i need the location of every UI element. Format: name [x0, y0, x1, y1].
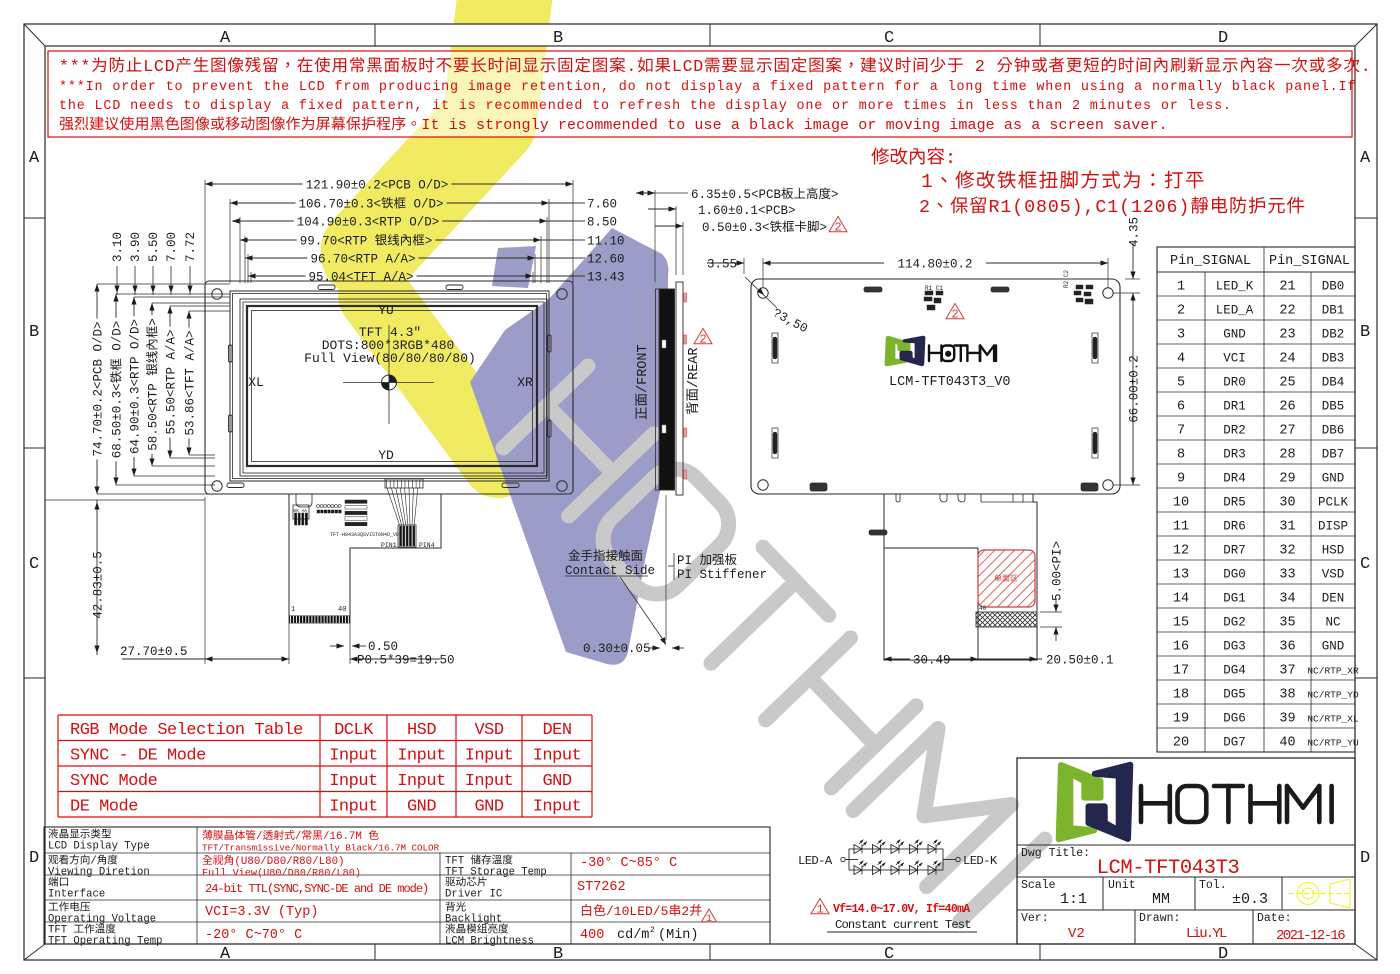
svg-text:3: 3 — [1177, 328, 1185, 343]
svg-text:7.72: 7.72 — [184, 232, 198, 262]
svg-text:21: 21 — [1279, 280, 1295, 295]
svg-text:3.10: 3.10 — [111, 232, 125, 262]
svg-text:Input: Input — [397, 772, 446, 791]
svg-text:HSD: HSD — [1322, 544, 1345, 558]
svg-text:38: 38 — [1279, 688, 1295, 703]
svg-text:P0.5*39=19.50: P0.5*39=19.50 — [357, 654, 455, 668]
svg-text:12.60: 12.60 — [587, 253, 625, 267]
svg-text:1:1: 1:1 — [1060, 891, 1087, 908]
svg-text:D: D — [1218, 945, 1228, 964]
svg-text:99.70<RTP: 99.70<RTP — [300, 235, 375, 249]
svg-text:C: C — [884, 29, 894, 48]
svg-text:LCM-TFT043T3_V0: LCM-TFT043T3_V0 — [889, 375, 1011, 390]
svg-text:40: 40 — [1279, 736, 1295, 751]
svg-text:40: 40 — [338, 606, 346, 614]
svg-text:11: 11 — [1173, 520, 1189, 535]
svg-text:D: D — [1218, 29, 1228, 48]
svg-text:C: C — [1360, 555, 1370, 574]
svg-text:29: 29 — [1279, 472, 1295, 487]
svg-text:Drawn:: Drawn: — [1139, 912, 1180, 925]
svg-text:Pin_SIGNAL: Pin_SIGNAL — [1269, 254, 1350, 269]
svg-text:A: A — [1360, 149, 1371, 168]
svg-text:XR: XR — [517, 375, 533, 390]
svg-text:31: 31 — [1279, 520, 1295, 535]
svg-text:DISP: DISP — [1318, 520, 1348, 534]
svg-text:It is strongly recommended to: It is strongly recommended to use a blac… — [421, 117, 1167, 134]
svg-text:74.70±0.2<PCB O/D>: 74.70±0.2<PCB O/D> — [92, 321, 106, 456]
svg-text:Input: Input — [329, 798, 378, 817]
svg-text:NC/RTP_XR: NC/RTP_XR — [1307, 666, 1359, 677]
svg-text:Input: Input — [329, 772, 378, 791]
svg-text:5.00<PI>: 5.00<PI> — [1051, 541, 1065, 601]
svg-text:40: 40 — [979, 605, 987, 612]
svg-text:NC/RTP_XL: NC/RTP_XL — [1307, 714, 1359, 725]
svg-text:106.70±0.3<: 106.70±0.3< — [299, 198, 382, 212]
svg-text:24-bit TTL(SYNC,SYNC-DE and DE: 24-bit TTL(SYNC,SYNC-DE and DE mode) — [205, 882, 428, 896]
svg-text:.: . — [1361, 57, 1372, 76]
svg-text:20: 20 — [1173, 736, 1189, 751]
svg-text:1: 1 — [921, 171, 934, 193]
svg-text:3.55: 3.55 — [707, 258, 737, 272]
svg-text:8: 8 — [1177, 448, 1185, 463]
svg-text:>: > — [425, 235, 433, 249]
svg-text:/16.7M: /16.7M — [323, 831, 368, 843]
svg-text:96.70<RTP A/A>: 96.70<RTP A/A> — [311, 253, 416, 267]
svg-text:DG6: DG6 — [1223, 712, 1246, 726]
svg-text:DG0: DG0 — [1223, 568, 1246, 582]
svg-text:C: C — [884, 945, 894, 964]
svg-text:DG4: DG4 — [1223, 664, 1246, 678]
svg-text:2: 2 — [650, 926, 655, 935]
svg-text:DEN: DEN — [542, 721, 571, 740]
svg-text:LED_A: LED_A — [1216, 304, 1254, 318]
svg-text:121.90±0.2<PCB O/D>: 121.90±0.2<PCB O/D> — [306, 179, 449, 193]
svg-text:24: 24 — [1279, 352, 1295, 367]
svg-text:DB7: DB7 — [1322, 448, 1345, 462]
svg-text:14: 14 — [1173, 592, 1189, 607]
svg-text:Input: Input — [465, 772, 514, 791]
svg-text:SYNC - DE Mode: SYNC - DE Mode — [70, 747, 206, 766]
svg-text:>: > — [831, 188, 839, 202]
svg-text:Date:: Date: — [1257, 912, 1292, 925]
svg-text:/FRONT: /FRONT — [636, 344, 651, 393]
svg-text:XL: XL — [248, 375, 264, 390]
svg-text:1: 1 — [706, 914, 712, 925]
svg-text:1: 1 — [291, 606, 295, 614]
svg-text:13: 13 — [1173, 568, 1189, 583]
svg-text:VSD: VSD — [474, 721, 503, 740]
svg-text:B: B — [29, 323, 39, 342]
svg-text:4: 4 — [1177, 352, 1185, 367]
svg-text:/: / — [256, 831, 262, 843]
svg-text:35: 35 — [1279, 616, 1295, 631]
svg-text:7.00: 7.00 — [165, 232, 179, 262]
svg-text:***: *** — [59, 57, 91, 76]
svg-text:27.70±0.5: 27.70±0.5 — [120, 645, 188, 659]
svg-text:DB4: DB4 — [1322, 376, 1345, 390]
svg-text:O/D>: O/D> — [111, 321, 125, 359]
svg-text:95.04<TFT A/A>: 95.04<TFT A/A> — [309, 271, 414, 285]
svg-text:DR5: DR5 — [1223, 496, 1246, 510]
svg-text:23: 23 — [1279, 328, 1295, 343]
svg-text:GND: GND — [1223, 328, 1246, 342]
svg-text:DB1: DB1 — [1322, 304, 1345, 318]
svg-text:DR6: DR6 — [1223, 520, 1246, 534]
svg-text:Constant current Test: Constant current Test — [835, 918, 971, 932]
svg-text:LED-K: LED-K — [963, 854, 998, 868]
svg-text:NC/RTP_YU: NC/RTP_YU — [1307, 738, 1359, 749]
svg-text:2: 2 — [1177, 304, 1185, 319]
svg-text:Ver:: Ver: — [1021, 912, 1049, 925]
svg-text:10: 10 — [1173, 496, 1189, 511]
svg-text:VCI: VCI — [1223, 352, 1246, 366]
svg-text:5.50: 5.50 — [147, 232, 161, 262]
svg-text:/REAR: /REAR — [687, 347, 702, 388]
svg-text:19: 19 — [1173, 712, 1189, 727]
svg-text:GND: GND — [1322, 640, 1345, 654]
svg-text:34: 34 — [1279, 592, 1295, 607]
svg-text:9: 9 — [1177, 472, 1185, 487]
svg-text:(U80/D80/R80/L80): (U80/D80/R80/L80) — [234, 856, 344, 868]
svg-text:DR1: DR1 — [1223, 400, 1246, 414]
svg-text:17: 17 — [1173, 664, 1189, 679]
svg-text:37: 37 — [1279, 664, 1295, 679]
svg-text:DG3: DG3 — [1223, 640, 1246, 654]
svg-text:DG5: DG5 — [1223, 688, 1246, 702]
svg-text:18: 18 — [1173, 688, 1189, 703]
svg-text:68.50±0.3<: 68.50±0.3< — [111, 383, 125, 458]
svg-text:Full View(U80/D80/R80/L80): Full View(U80/D80/R80/L80) — [202, 868, 361, 880]
svg-text:LCD Display Type: LCD Display Type — [48, 841, 150, 853]
svg-text:VSD: VSD — [1322, 568, 1345, 582]
svg-text:PCLK: PCLK — [1318, 496, 1349, 510]
svg-text:2: 2 — [681, 904, 689, 919]
svg-text:27: 27 — [1279, 424, 1295, 439]
svg-text:64.90±0.3<RTP O/D>: 64.90±0.3<RTP O/D> — [129, 319, 143, 454]
svg-text:MM: MM — [1152, 891, 1170, 908]
svg-text:25: 25 — [1279, 376, 1295, 391]
svg-text:GND: GND — [542, 772, 571, 791]
svg-text:Liu.YL: Liu.YL — [1186, 926, 1227, 942]
svg-text:>: > — [820, 221, 828, 235]
svg-text:A: A — [220, 945, 231, 964]
svg-text:PI Stiffener: PI Stiffener — [677, 568, 767, 582]
svg-text:55.50<RTP A/A>: 55.50<RTP A/A> — [165, 329, 179, 434]
svg-text:VCI=3.3V (Typ): VCI=3.3V (Typ) — [205, 905, 318, 920]
svg-text:2021-12-16: 2021-12-16 — [1276, 928, 1345, 944]
svg-text:0.30±0.05: 0.30±0.05 — [583, 642, 651, 656]
svg-text:11.10: 11.10 — [587, 235, 625, 249]
svg-text:O/D>: O/D> — [406, 198, 444, 212]
svg-text:DB6: DB6 — [1322, 424, 1345, 438]
svg-text:Input: Input — [533, 747, 582, 766]
svg-text:DE Mode: DE Mode — [70, 798, 138, 817]
svg-text:DB0: DB0 — [1322, 280, 1345, 294]
svg-text:3.90: 3.90 — [129, 232, 143, 262]
svg-text:28: 28 — [1279, 448, 1295, 463]
svg-text:DR0: DR0 — [1223, 376, 1246, 390]
svg-text:RGB Mode Selection Table: RGB Mode Selection Table — [70, 721, 303, 740]
svg-text:LED_K: LED_K — [1216, 280, 1254, 294]
svg-text:cd/m: cd/m — [617, 928, 649, 943]
svg-text:.: . — [626, 57, 637, 76]
svg-text:7.60: 7.60 — [587, 198, 617, 212]
svg-text:HSD: HSD — [407, 721, 436, 740]
svg-text:30.49: 30.49 — [913, 654, 951, 668]
svg-text:53.86<TFT A/A>: 53.86<TFT A/A> — [184, 330, 198, 435]
svg-text:114.80±0.2: 114.80±0.2 — [897, 258, 972, 272]
svg-text:2: 2 — [964, 57, 996, 76]
svg-text:A: A — [220, 29, 231, 48]
svg-text:DG1: DG1 — [1223, 592, 1246, 606]
svg-text:/10LED/5: /10LED/5 — [606, 904, 668, 919]
svg-text:>: > — [147, 318, 161, 326]
svg-text:V2: V2 — [1068, 926, 1085, 942]
svg-text:DG7: DG7 — [1223, 736, 1246, 750]
svg-text:4.35: 4.35 — [1128, 217, 1142, 247]
svg-text:0.50±0.3<: 0.50±0.3< — [702, 221, 770, 235]
svg-text:Viewing Diretion: Viewing Diretion — [48, 867, 150, 879]
svg-text:DR3: DR3 — [1223, 448, 1246, 462]
svg-text:DB2: DB2 — [1322, 328, 1345, 342]
svg-text:1: 1 — [1177, 280, 1185, 295]
svg-text:16: 16 — [1173, 640, 1189, 655]
svg-text:-30° C~85° C: -30° C~85° C — [580, 856, 677, 871]
svg-text:6: 6 — [1177, 400, 1185, 415]
svg-text:GND: GND — [1322, 472, 1345, 486]
svg-text:Input: Input — [533, 798, 582, 817]
svg-text:DCLK: DCLK — [334, 721, 374, 740]
svg-text:the LCD needs to display a fix: the LCD needs to display a fixed pattern… — [59, 99, 1232, 114]
svg-text:58.50<RTP: 58.50<RTP — [147, 376, 161, 451]
svg-text:66.00±0.2: 66.00±0.2 — [1128, 355, 1142, 423]
svg-text:TFT Storage Temp: TFT Storage Temp — [445, 867, 547, 879]
svg-text:DB5: DB5 — [1322, 400, 1345, 414]
svg-text:Input: Input — [397, 747, 446, 766]
svg-text:Input: Input — [465, 747, 514, 766]
svg-text:B: B — [553, 945, 563, 964]
svg-text:39: 39 — [1279, 712, 1295, 727]
svg-text:1: 1 — [816, 903, 823, 917]
svg-text:5: 5 — [1177, 376, 1185, 391]
svg-text:2: 2 — [834, 221, 841, 235]
svg-text:Full View(80/80/80/80): Full View(80/80/80/80) — [304, 351, 476, 366]
svg-text:33: 33 — [1279, 568, 1295, 583]
svg-text:LCD: LCD — [672, 57, 704, 76]
svg-text:Input: Input — [329, 747, 378, 766]
svg-text:(Min): (Min) — [658, 928, 699, 943]
svg-text:7: 7 — [1177, 424, 1185, 439]
svg-text:13.43: 13.43 — [587, 271, 625, 285]
svg-text:2: 2 — [699, 333, 706, 347]
svg-text:DR2: DR2 — [1223, 424, 1246, 438]
svg-text:DEN: DEN — [1322, 592, 1345, 606]
svg-text:LED-A: LED-A — [798, 854, 833, 868]
svg-text:YD: YD — [378, 448, 394, 463]
svg-text:B: B — [1360, 323, 1370, 342]
svg-text:C: C — [29, 555, 39, 574]
svg-text:/: / — [295, 831, 301, 843]
svg-text:Backlight: Backlight — [445, 914, 502, 926]
svg-text:DG2: DG2 — [1223, 616, 1246, 630]
svg-text:12: 12 — [1173, 544, 1189, 559]
svg-text:A: A — [29, 149, 40, 168]
svg-text:Dwg Title:: Dwg Title: — [1021, 847, 1090, 860]
svg-text:15: 15 — [1173, 616, 1189, 631]
svg-text:SYNC Mode: SYNC Mode — [70, 772, 158, 791]
svg-text:LCM Brightness: LCM Brightness — [445, 936, 534, 948]
svg-text:LCD: LCD — [143, 57, 175, 76]
svg-text:TFT Operating Temp: TFT Operating Temp — [48, 936, 162, 948]
svg-text:1.60±0.1<PCB>: 1.60±0.1<PCB> — [698, 204, 796, 218]
svg-text:GND: GND — [474, 798, 503, 817]
svg-text:NC: NC — [1325, 616, 1340, 630]
svg-text:DB3: DB3 — [1322, 352, 1345, 366]
svg-text:R2 C2: R2 C2 — [1063, 270, 1070, 288]
svg-text:0.50: 0.50 — [368, 640, 398, 654]
svg-text:36: 36 — [1279, 640, 1295, 655]
svg-text:Interface: Interface — [48, 889, 105, 901]
svg-text:Vf=14.0~17.0V, If=40mA: Vf=14.0~17.0V, If=40mA — [833, 903, 970, 916]
svg-text:42.83±0.5: 42.83±0.5 — [92, 551, 106, 619]
svg-text:Unit: Unit — [1108, 879, 1136, 892]
svg-text:32: 32 — [1279, 544, 1295, 559]
svg-text:8.50: 8.50 — [587, 216, 617, 230]
svg-text::: : — [945, 148, 956, 169]
svg-text:6.35±0.5<PCB: 6.35±0.5<PCB — [691, 188, 782, 202]
svg-text:Scale: Scale — [1021, 879, 1056, 892]
svg-text:-20° C~70° C: -20° C~70° C — [205, 928, 302, 943]
svg-text:***In order to prevent the LCD: ***In order to prevent the LCD from prod… — [59, 80, 1356, 95]
svg-text:R1(0805),C1(1206): R1(0805),C1(1206) — [989, 198, 1191, 218]
svg-text:PIN1: PIN1 — [381, 542, 397, 549]
svg-text:DR4: DR4 — [1223, 472, 1246, 486]
svg-text:Driver IC: Driver IC — [445, 889, 502, 901]
svg-text:104.90±0.3<RTP O/D>: 104.90±0.3<RTP O/D> — [297, 216, 440, 230]
svg-text:D: D — [1360, 849, 1370, 868]
svg-text:PIN4: PIN4 — [419, 542, 435, 549]
svg-text:B: B — [553, 29, 563, 48]
svg-text:Tol.: Tol. — [1199, 879, 1227, 892]
svg-text:TFT-H043A3QSVIST6N4O_VD: TFT-H043A3QSVIST6N4O_VD — [330, 532, 399, 538]
svg-text:YU: YU — [378, 303, 394, 318]
svg-text:GND: GND — [407, 798, 436, 817]
svg-text:400: 400 — [580, 928, 604, 943]
svg-text:26: 26 — [1279, 400, 1295, 415]
svg-text:22: 22 — [1279, 304, 1295, 319]
svg-text:LCM-TFT043T3: LCM-TFT043T3 — [1097, 857, 1240, 880]
svg-text:D: D — [29, 849, 39, 868]
svg-text:20.50±0.1: 20.50±0.1 — [1046, 654, 1114, 668]
svg-text:KK AA: KK AA — [294, 508, 308, 514]
svg-text:Pin_SIGNAL: Pin_SIGNAL — [1170, 254, 1251, 269]
svg-text:TFT/Transmissive/Normally Blac: TFT/Transmissive/Normally Black/16.7M CO… — [202, 843, 440, 854]
svg-text:PI: PI — [677, 554, 700, 568]
svg-text:ST7262: ST7262 — [577, 880, 626, 895]
svg-text:±0.3: ±0.3 — [1232, 891, 1268, 908]
svg-text:2: 2 — [951, 308, 958, 322]
svg-text:DR7: DR7 — [1223, 544, 1246, 558]
svg-text:NC/RTP_YD: NC/RTP_YD — [1307, 690, 1359, 701]
svg-text:30: 30 — [1279, 496, 1295, 511]
svg-text:2: 2 — [919, 198, 931, 218]
